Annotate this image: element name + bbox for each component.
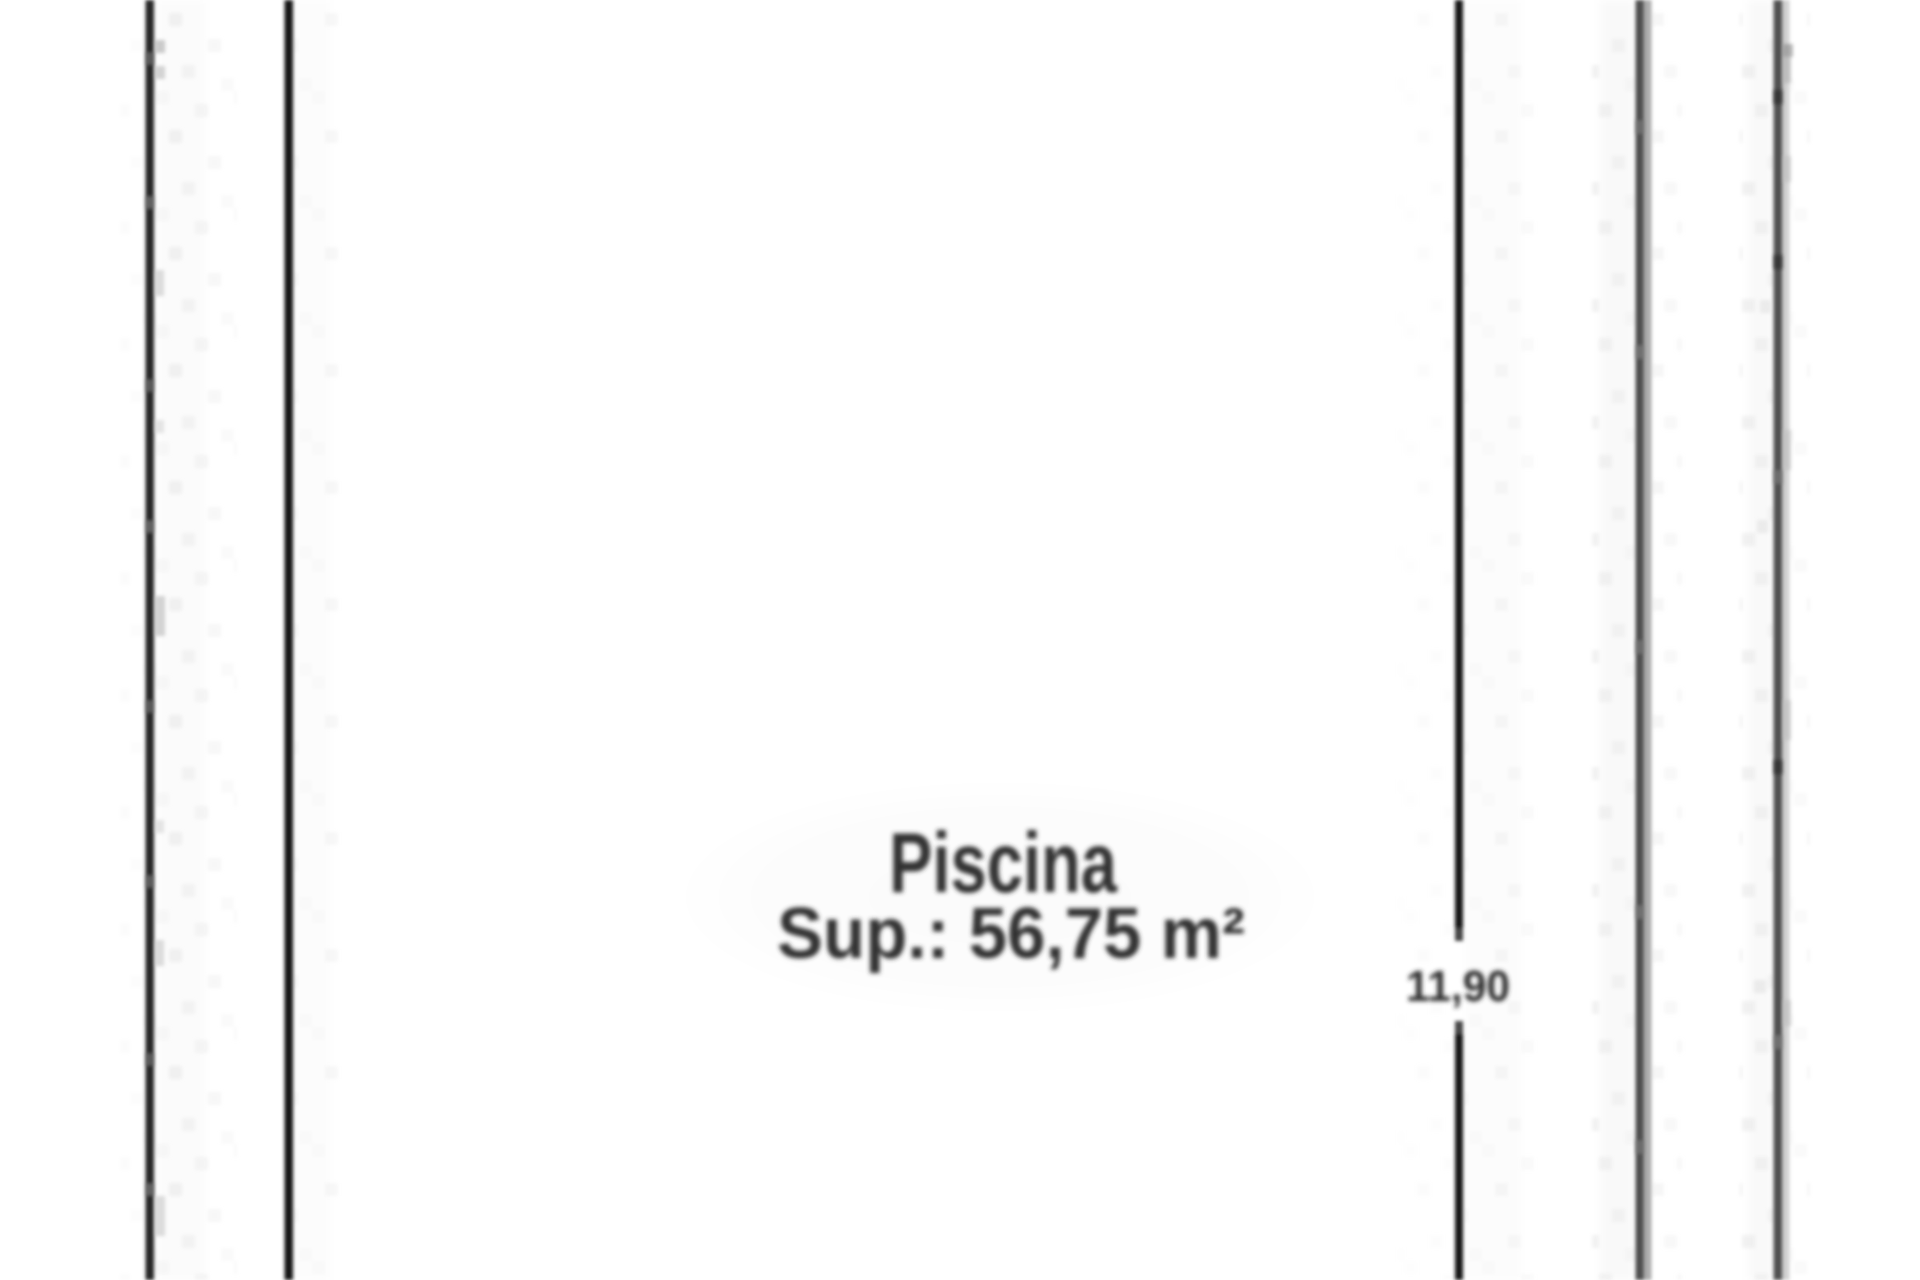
svg-text:Sup.: 56,75 m²: Sup.: 56,75 m²	[777, 894, 1245, 974]
svg-text:11,90: 11,90	[1406, 962, 1510, 1011]
